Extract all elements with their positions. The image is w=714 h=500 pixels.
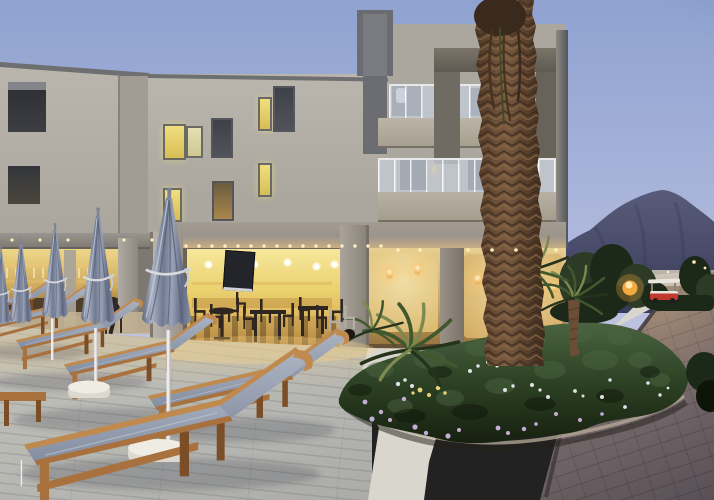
closed-umbrella [0, 246, 10, 324]
pool-terrace-foreground [0, 0, 714, 500]
umbrella-base [68, 381, 110, 399]
hotel-dusk-photo [0, 0, 714, 500]
